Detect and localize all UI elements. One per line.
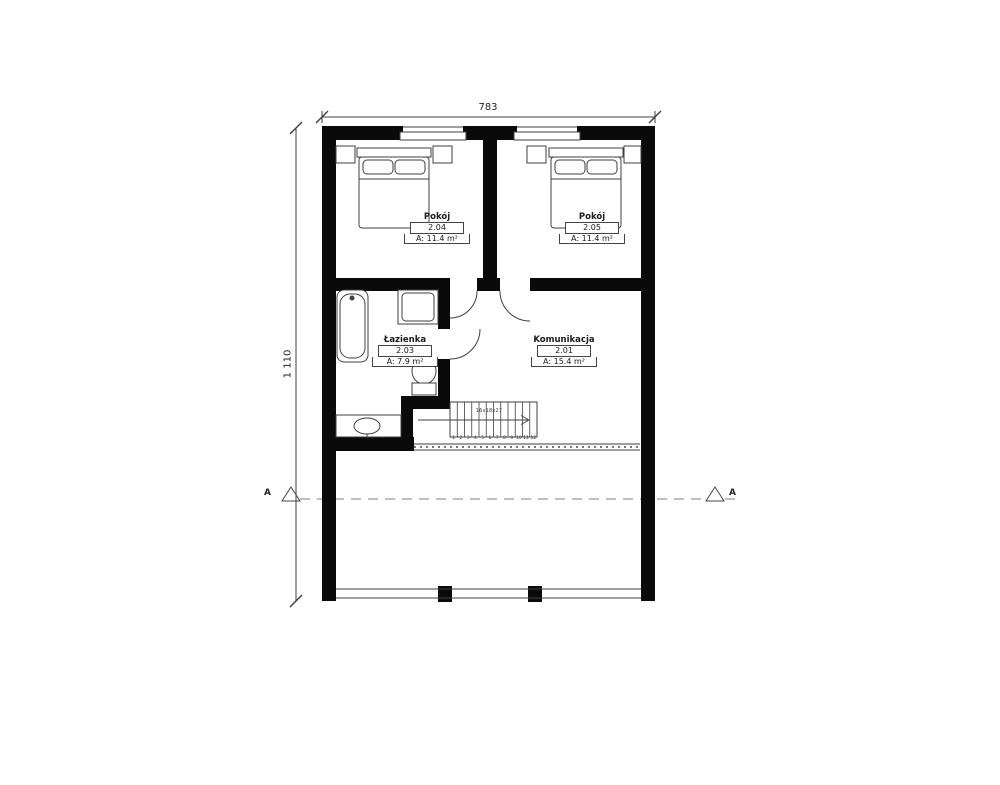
staircase — [414, 402, 640, 450]
stair-step-number: 3 — [465, 437, 472, 442]
stair-step-number: 2 — [457, 437, 464, 442]
room-label-pokoj-204: Pokój 2.04 A: 11.4 m² — [404, 212, 470, 244]
stair-step-number: 5 — [479, 437, 486, 442]
room-label-komunikacja-201: Komunikacja 2.01 A: 15.4 m² — [531, 335, 597, 367]
floor-plan-drawing — [0, 0, 1000, 785]
door-arc-room-205 — [500, 291, 530, 321]
room-name: Pokój — [579, 212, 605, 222]
room-name: Komunikacja — [533, 335, 594, 345]
door-arc-room-204 — [450, 291, 477, 318]
room-area: A: 11.4 m² — [559, 234, 625, 245]
room-label-pokoj-205: Pokój 2.05 A: 11.4 m² — [559, 212, 625, 244]
sink — [336, 415, 401, 438]
stair-step-number: 7 — [494, 437, 501, 442]
room-number: 2.05 — [565, 222, 619, 234]
nightstand — [433, 146, 452, 163]
stair-dimension-label: 16x18x27 — [476, 408, 503, 414]
dimension-left: 1 110 — [283, 348, 294, 381]
headboard — [357, 148, 431, 157]
room-number: 2.04 — [410, 222, 464, 234]
pillow — [395, 160, 425, 174]
headboard — [549, 148, 623, 157]
pillow — [587, 160, 617, 174]
pillow — [363, 160, 393, 174]
pillow — [555, 160, 585, 174]
nightstand — [624, 146, 641, 163]
stair-step-number: 4 — [472, 437, 479, 442]
stair-step-number: 1 — [450, 437, 457, 442]
room-label-lazienka-203: Łazienka 2.03 A: 7.9 m² — [372, 335, 438, 367]
window-top-right — [514, 127, 580, 140]
room-number: 2.03 — [378, 345, 432, 357]
door-arcs — [450, 291, 530, 359]
stair-step-number: 11 — [523, 437, 530, 442]
section-marker-a-right: A — [729, 488, 736, 498]
stair-step-number: 12 — [530, 437, 537, 442]
dimension-top: 783 — [476, 102, 499, 113]
room-area: A: 7.9 m² — [372, 357, 438, 368]
nightstand — [527, 146, 546, 163]
section-triangle-left-icon — [282, 487, 300, 501]
floor-plan-canvas: 783 1 110 A A Pokój 2.04 A: 11.4 m² Pokó… — [0, 0, 1000, 785]
room-name: Pokój — [424, 212, 450, 222]
window-top-left — [400, 127, 466, 140]
room-area: A: 11.4 m² — [404, 234, 470, 245]
stair-step-number: 6 — [486, 437, 493, 442]
stair-step-number: 8 — [501, 437, 508, 442]
section-marker-a-left: A — [264, 488, 271, 498]
shower — [398, 290, 438, 324]
room-number: 2.01 — [537, 345, 591, 357]
stair-step-number: 9 — [508, 437, 515, 442]
room-area: A: 15.4 m² — [531, 357, 597, 368]
nightstand — [336, 146, 355, 163]
bathtub — [337, 290, 368, 362]
stair-step-numbers: 123456789101112 — [450, 437, 537, 442]
window-bottom-band — [336, 589, 641, 598]
stair-step-number: 10 — [515, 437, 522, 442]
room-name: Łazienka — [384, 335, 426, 345]
section-triangle-right-icon — [706, 487, 724, 501]
door-arc-bathroom — [450, 329, 480, 359]
